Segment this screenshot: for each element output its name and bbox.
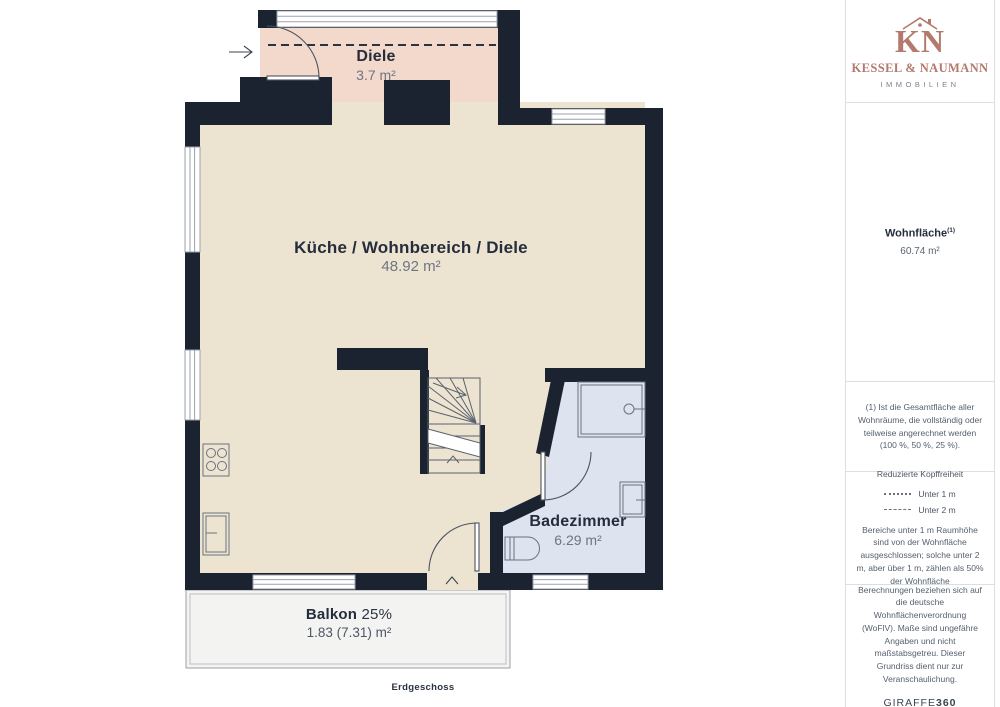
provider-name: GIRAFFE	[883, 697, 936, 707]
legend-row-under-2m: Unter 2 m	[884, 505, 955, 515]
window-bottom	[253, 575, 355, 589]
window-bath	[533, 575, 588, 589]
window-top	[277, 11, 497, 27]
room-label-diele: Diele 3.7 m²	[356, 47, 396, 85]
room-label-balcony: Balkon 25% 1.83 (7.31) m²	[306, 606, 392, 642]
legend-label: Unter 1 m	[918, 489, 955, 499]
room-name: Badezimmer	[529, 512, 626, 532]
area-title: Wohnfläche(1)	[885, 227, 955, 240]
legend-label: Unter 2 m	[918, 505, 955, 515]
provider-suffix: 360	[936, 697, 957, 707]
floorplan-page: Diele 3.7 m² Küche / Wohnbereich / Diele…	[0, 0, 1000, 707]
floor-label: Erdgeschoss	[392, 682, 455, 693]
brand-monogram: KN	[895, 25, 945, 57]
window-top-right	[552, 109, 605, 124]
room-label-living: Küche / Wohnbereich / Diele 48.92 m²	[294, 237, 528, 277]
brand-logo: KN KESSEL & NAUMANN IMMOBILIEN	[846, 0, 994, 103]
brand-division: IMMOBILIEN	[880, 80, 959, 89]
room-area: 6.29 m²	[529, 532, 626, 550]
brand-name: KESSEL & NAUMANN	[852, 61, 989, 76]
window-left-upper	[185, 147, 200, 252]
dashed-line-sample	[884, 509, 911, 510]
area-footnote: (1) Ist die Gesamtfläche aller Wohnräume…	[846, 382, 994, 472]
room-name: Küche / Wohnbereich / Diele	[294, 237, 528, 258]
disclaimer-text: Berechnungen beziehen sich auf die deuts…	[856, 584, 984, 686]
headroom-note: Bereiche unter 1 m Raumhöhe sind von der…	[856, 524, 984, 588]
area-value: 60.74 m²	[900, 246, 939, 257]
sidebar: KN KESSEL & NAUMANN IMMOBILIEN Wohnfläch…	[845, 0, 995, 707]
room-area: 3.7 m²	[356, 67, 396, 85]
balcony-door-opening	[427, 573, 478, 590]
footnote-marker: (1)	[947, 227, 955, 234]
headroom-title: Reduzierte Kopffreiheit	[877, 469, 963, 479]
room-area: 48.92 m²	[294, 258, 528, 277]
disclaimer: Berechnungen beziehen sich auf die deuts…	[846, 585, 994, 707]
room-area: 1.83 (7.31) m²	[306, 625, 392, 642]
room-name: Diele	[356, 47, 396, 67]
living-area-summary: Wohnfläche(1) 60.74 m²	[846, 103, 994, 382]
dotted-line-sample	[884, 493, 911, 495]
headroom-legend: Reduzierte Kopffreiheit Unter 1 m Unter …	[846, 472, 994, 585]
provider-logo: GIRAFFE360	[883, 697, 956, 707]
window-left-lower	[185, 350, 200, 420]
entry-arrow	[229, 46, 252, 58]
balcony-percent: 25%	[361, 606, 392, 623]
legend-row-under-1m: Unter 1 m	[884, 489, 955, 499]
footnote-text: (1) Ist die Gesamtfläche aller Wohnräume…	[856, 401, 984, 452]
room-name: Balkon 25%	[306, 606, 392, 625]
room-label-bath: Badezimmer 6.29 m²	[529, 512, 626, 550]
